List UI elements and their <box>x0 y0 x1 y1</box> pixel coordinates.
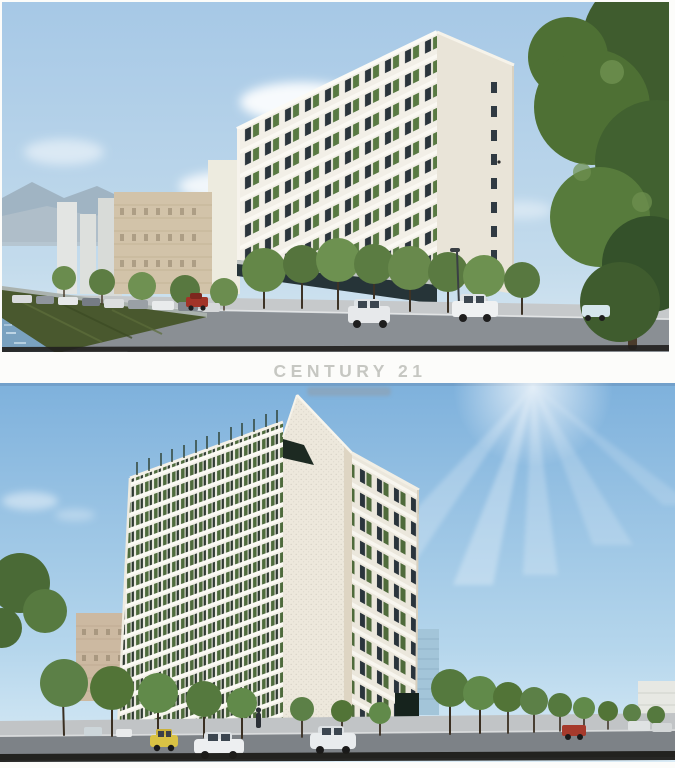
bird-speck <box>497 160 500 163</box>
white-van <box>628 721 650 731</box>
rendering-street-view <box>2 2 669 352</box>
scanned-listing-page: CENTURY 21 <box>0 0 675 768</box>
corner-tower <box>283 395 352 739</box>
pedestrian <box>256 707 261 728</box>
distant-car <box>116 729 132 737</box>
corner-view-scene <box>0 383 675 762</box>
century21-wordmark: CENTURY 21 <box>274 361 427 381</box>
watermark-subtext-illegible <box>307 387 391 396</box>
rendering-corner-view <box>0 383 675 762</box>
street-view-scene <box>2 2 669 352</box>
distant-car <box>84 727 102 736</box>
tan-building <box>114 192 212 294</box>
century21-watermark: CENTURY 21 <box>0 361 675 382</box>
white-van <box>652 723 672 732</box>
